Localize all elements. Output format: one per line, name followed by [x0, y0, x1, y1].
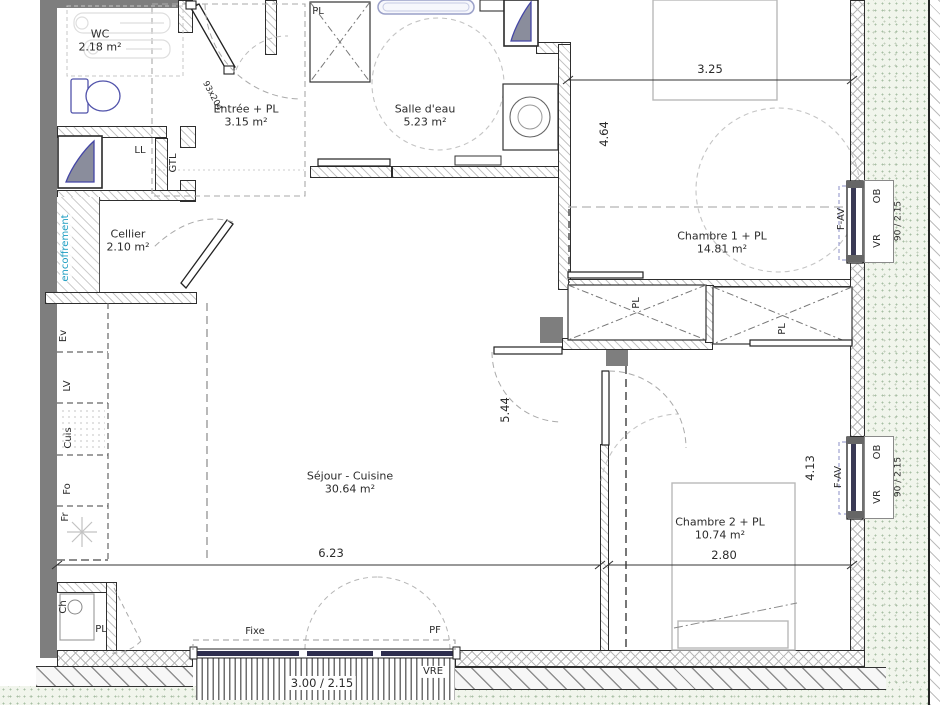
dim-chambre2-height: 4.13: [803, 452, 817, 484]
label-pl-ch: PL: [95, 624, 107, 636]
dim-chambre2-width: 2.80: [708, 548, 740, 562]
label-vr-2: VR: [872, 490, 884, 504]
room-label-cellier: Cellier 2.10 m²: [106, 228, 149, 255]
floor-plan: WC 2.18 m² Entrée + PL 3.15 m² Salle d'e…: [0, 0, 940, 705]
label-dishwasher: LV: [62, 380, 74, 391]
toilet-bowl: [86, 81, 120, 111]
dim-sejour-width: 6.23: [315, 546, 347, 560]
dim-bay-window: 3.00 / 2.15: [288, 676, 356, 690]
dim-sejour-height: 5.44: [498, 394, 512, 426]
label-pl-chambre1: PL: [631, 297, 643, 309]
label-water-heater: Ch: [58, 600, 70, 613]
plan-linework: [0, 0, 940, 705]
dim-chambre1-width: 3.25: [694, 62, 726, 76]
closets: [310, 2, 852, 344]
chambre2-door-leaf: [602, 371, 609, 445]
label-vre: VRE: [420, 666, 446, 678]
fixtures: [58, 0, 558, 640]
room-label-sejour: Séjour - Cuisine 30.64 m²: [307, 470, 393, 497]
label-fridge: Fr: [60, 512, 72, 521]
room-label-wc: WC 2.18 m²: [78, 28, 121, 55]
dim-window1-size: 90 / 2.15: [894, 201, 905, 241]
label-cooktop: Cuis: [63, 427, 75, 448]
turning-circles: [372, 18, 860, 481]
shower-tray: [378, 0, 474, 14]
label-washing-machine: LL: [134, 145, 145, 157]
label-fixed-glazing: Fixe: [245, 626, 265, 638]
label-gtl: GTL: [168, 153, 180, 172]
cellier-door-leaf: [181, 220, 233, 288]
kitchen-layout: [57, 303, 207, 562]
label-oven: Fo: [62, 483, 74, 495]
radiator: [455, 156, 501, 165]
label-sink: Ev: [58, 330, 70, 342]
sink-box: [480, 0, 504, 11]
label-pl-salle-eau: PL: [312, 6, 324, 18]
chambre1-door-leaf: [494, 347, 562, 354]
label-ob-2: OB: [872, 445, 884, 460]
dim-window2-size: 90 / 2.15: [894, 457, 905, 497]
label-encoffrement: encoffrement: [60, 214, 72, 281]
label-pl-chambre2: PL: [777, 323, 789, 335]
label-ob-1: OB: [872, 189, 884, 204]
entry-door-leaf: [191, 4, 235, 71]
room-label-chambre2: Chambre 2 + PL 10.74 m²: [675, 516, 765, 543]
room-label-chambre1: Chambre 1 + PL 14.81 m²: [677, 230, 767, 257]
label-vr-1: VR: [872, 234, 884, 248]
room-label-salle-eau: Salle d'eau 5.23 m²: [395, 103, 456, 130]
label-fav-1: F-AV: [836, 208, 848, 230]
dim-chambre1-height: 4.64: [597, 118, 611, 150]
label-french-door: PF: [429, 625, 441, 637]
label-fav-2: F-AV: [833, 466, 845, 488]
